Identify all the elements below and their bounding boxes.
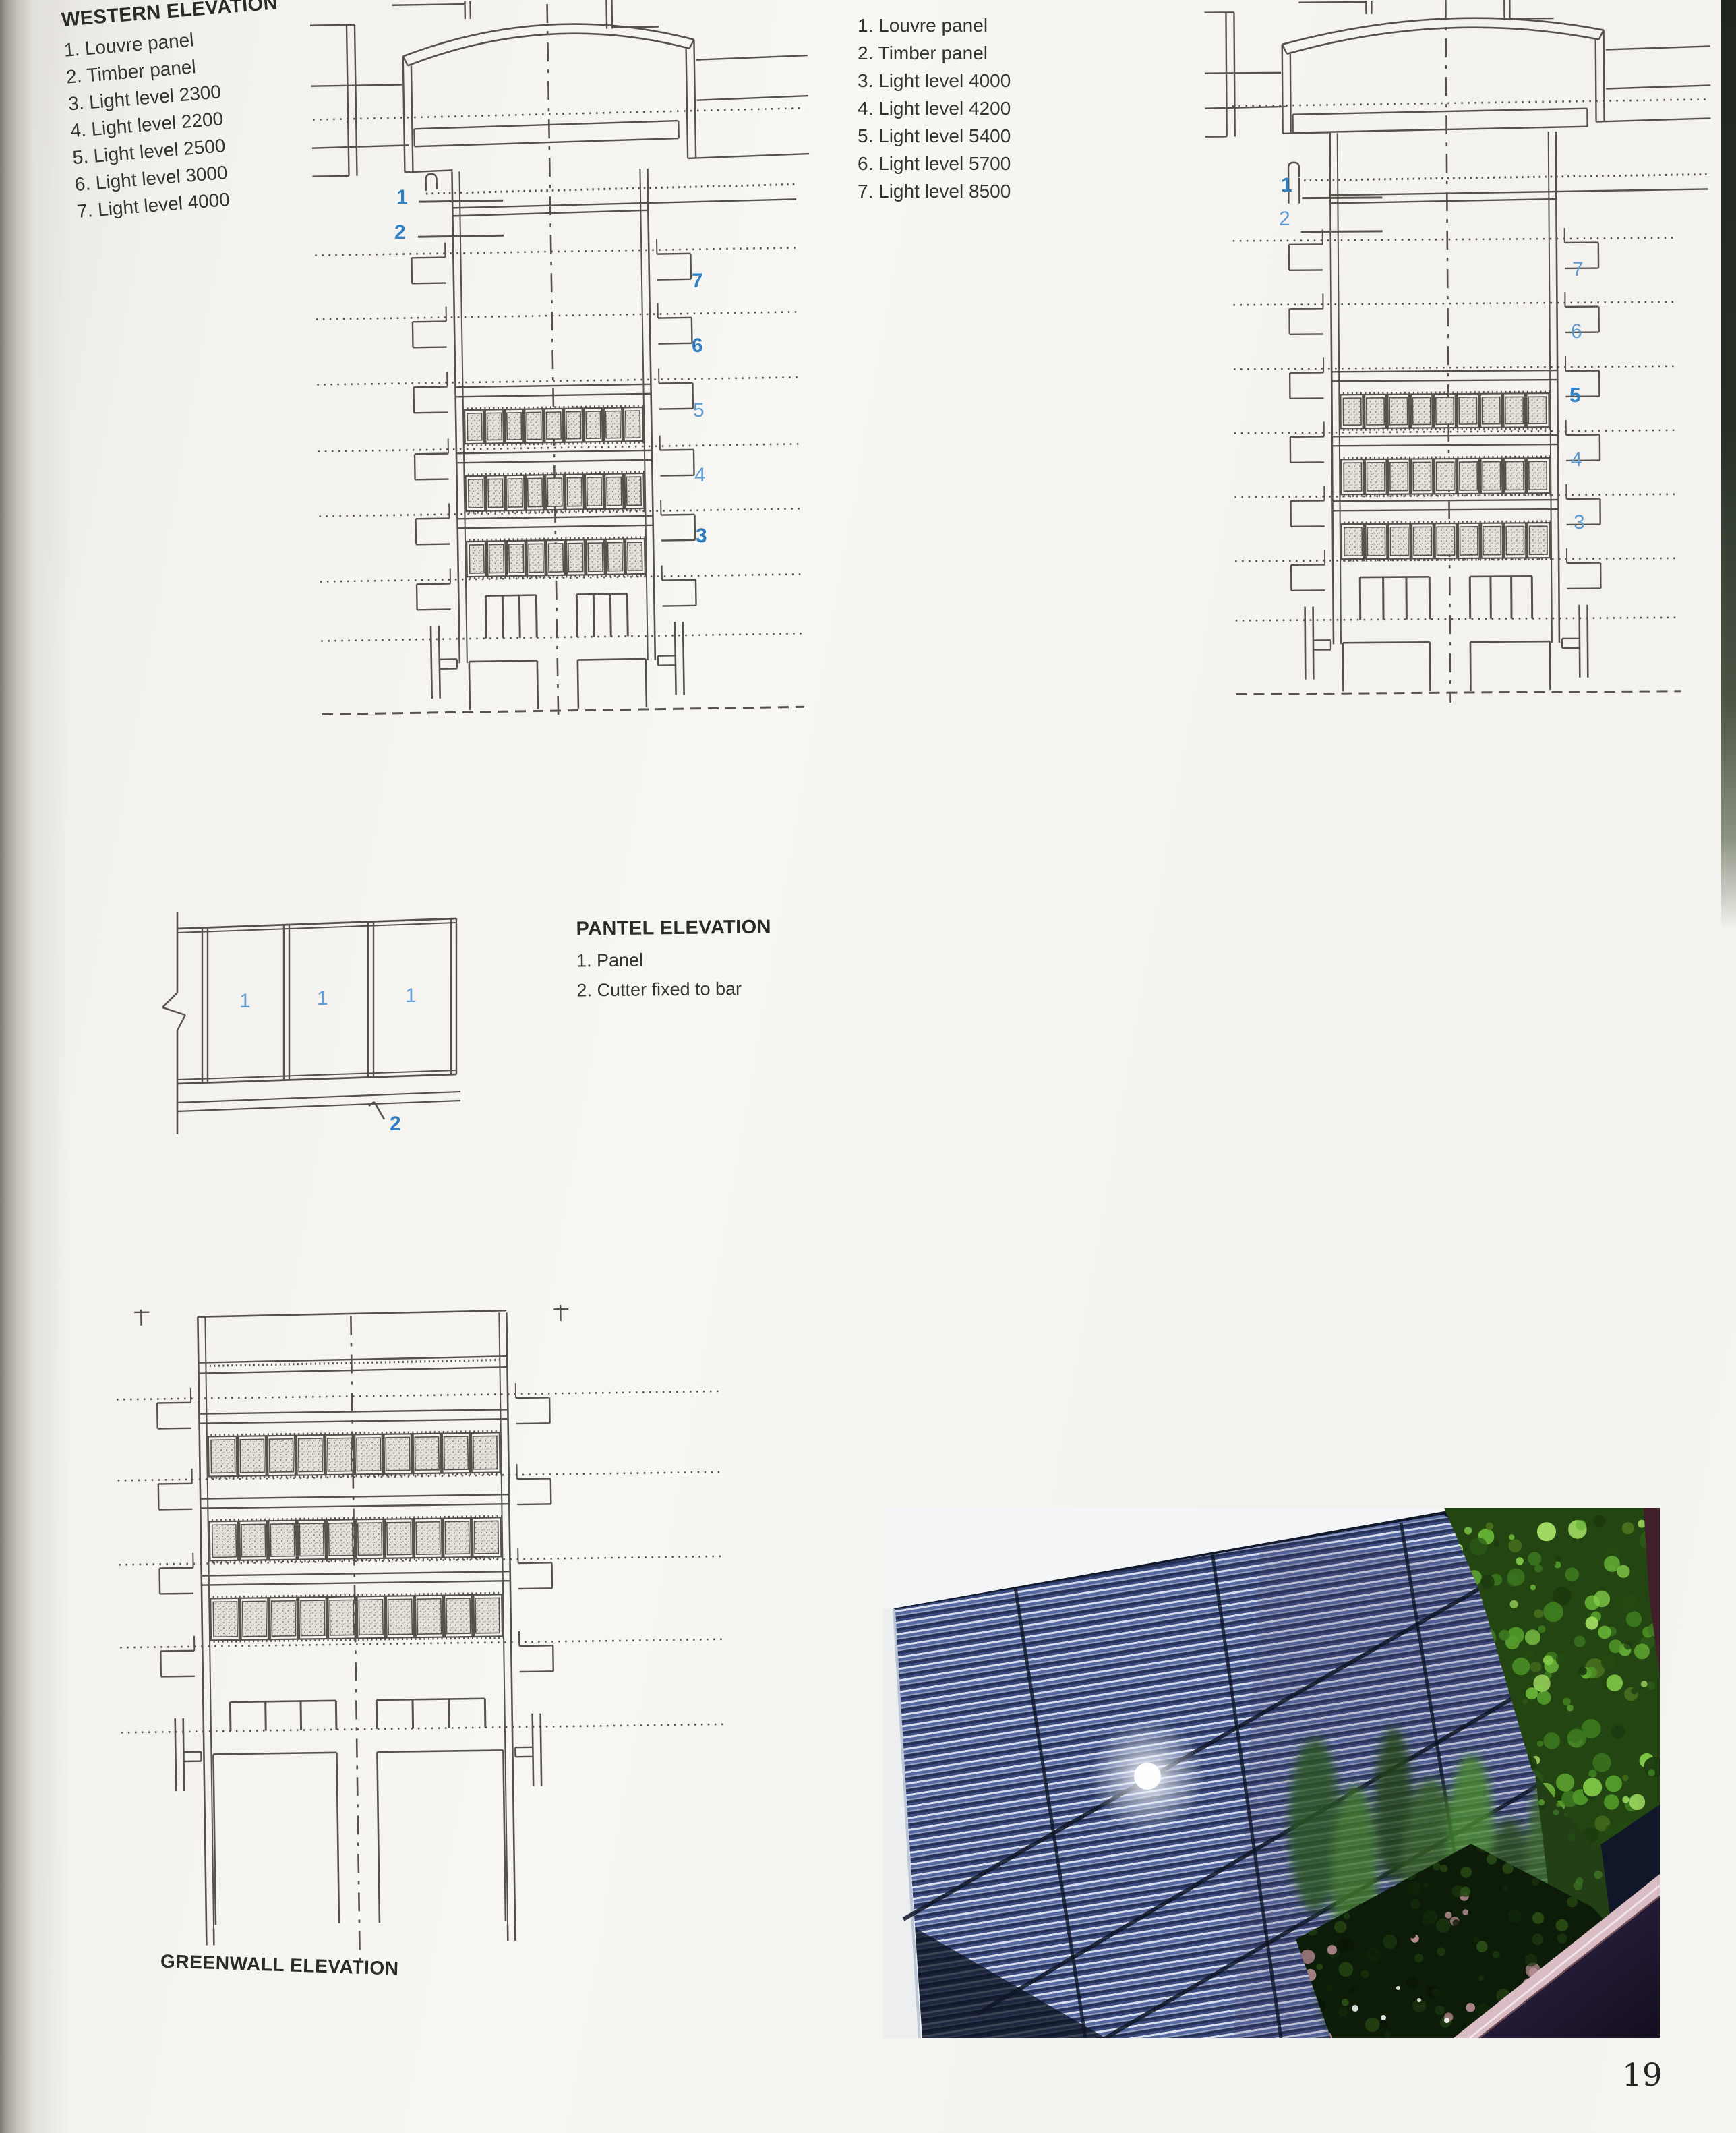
callout-number: 1 (1281, 174, 1292, 197)
eastern-elevation-title: EASTERN ELEVATION (858, 0, 1070, 5)
callout-number: 1 (396, 186, 408, 209)
page-number: 19 (1622, 2057, 1663, 2094)
scanned-page: WESTERN ELEVATION 1. Louvre panel2. Timb… (0, 0, 1736, 2133)
pantel-elevation-legend: PANTEL ELEVATION 1. Panel2. Cutter fixed… (576, 916, 772, 1005)
callout-number: 1 (317, 987, 328, 1010)
callout-number: 2 (390, 1113, 401, 1136)
western-elevation-items: 1. Louvre panel2. Timber panel3. Light l… (63, 20, 294, 225)
eastern-elevation-legend: EASTERN ELEVATION 1. Louvre panel2. Timb… (858, 0, 1070, 205)
callout-number: 3 (1574, 511, 1585, 534)
western-elevation-drawing (291, 0, 821, 739)
pantel-elevation-items: 1. Panel2. Cutter fixed to bar (576, 943, 772, 1005)
greenwall-elevation-drawing (110, 1291, 740, 1981)
legend-item: 2. Timber panel (858, 39, 1070, 67)
greenwall-facade-photo (883, 1508, 1660, 2038)
callout-number: 7 (1572, 258, 1584, 281)
pantel-elevation-title: PANTEL ELEVATION (576, 916, 771, 940)
legend-item: 4. Light level 4200 (858, 94, 1070, 122)
western-elevation-legend: WESTERN ELEVATION 1. Louvre panel2. Timb… (61, 0, 294, 225)
callout-number: 3 (696, 525, 707, 548)
legend-item: 7. Light level 8500 (858, 177, 1070, 205)
callout-number: 5 (693, 399, 705, 422)
eastern-elevation-items: 1. Louvre panel2. Timber panel3. Light l… (858, 11, 1070, 205)
scan-edge-strip (1721, 0, 1736, 931)
callout-number: 1 (239, 990, 251, 1013)
callout-number: 1 (405, 985, 417, 1007)
legend-item: 3. Light level 4000 (858, 67, 1070, 94)
callout-number: 6 (1571, 320, 1582, 343)
legend-item: 5. Light level 5400 (858, 122, 1070, 150)
callout-number: 7 (692, 270, 703, 293)
callout-number: 4 (694, 464, 706, 487)
callout-number: 2 (394, 221, 406, 244)
eastern-elevation-drawing (1204, 0, 1721, 717)
callout-number: 4 (1571, 448, 1582, 471)
eastern-elevation-title-clipped: EASTERN ELEVATION (858, 0, 1070, 6)
legend-item: 2. Cutter fixed to bar (576, 973, 772, 1005)
callout-number: 6 (692, 334, 703, 357)
legend-item: 6. Light level 5700 (858, 150, 1070, 177)
book-gutter-shadow (0, 0, 74, 2133)
legend-item: 1. Louvre panel (858, 11, 1070, 39)
callout-number: 5 (1569, 384, 1581, 407)
legend-item: 1. Panel (576, 943, 772, 975)
pantel-elevation-drawing (152, 897, 489, 1153)
callout-number: 2 (1279, 208, 1290, 231)
